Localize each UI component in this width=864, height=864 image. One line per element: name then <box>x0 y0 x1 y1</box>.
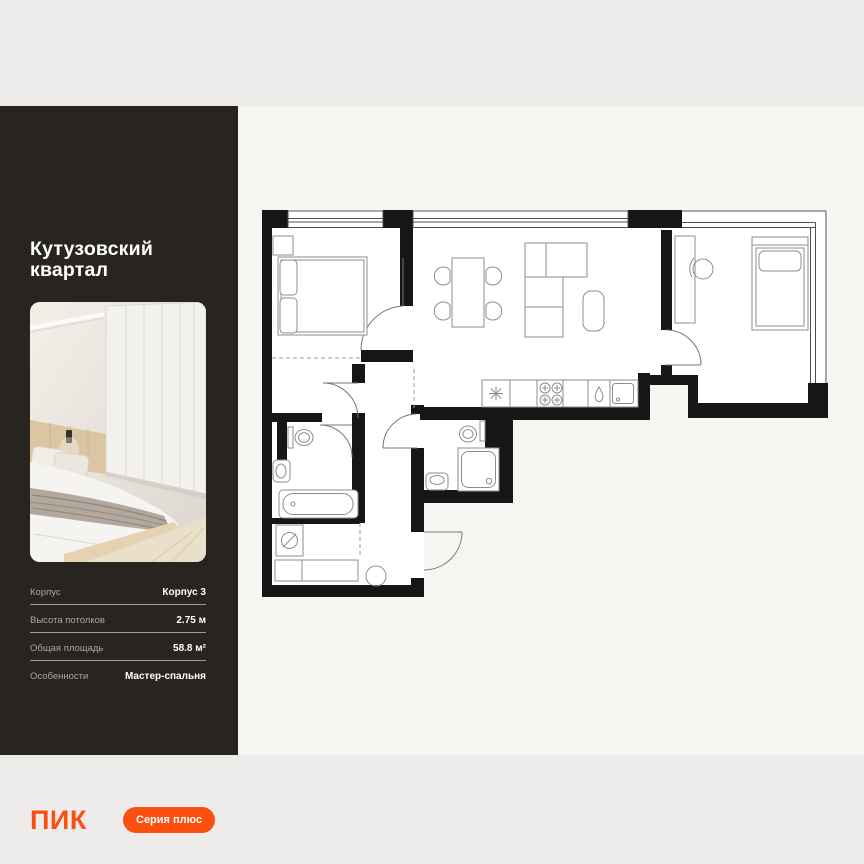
single-bed <box>752 237 808 330</box>
dining-table <box>452 258 484 327</box>
floor-plan <box>262 207 832 597</box>
entrance-door <box>424 532 462 570</box>
spec-list: Корпус Корпус 3 Высота потолков 2.75 м О… <box>30 587 206 698</box>
spec-label: Особенности <box>30 671 88 682</box>
spec-row-total-area: Общая площадь 58.8 м² <box>30 643 206 661</box>
sidebar: Кутузовский квартал <box>0 106 238 755</box>
wc-sink-icon <box>426 473 448 490</box>
spec-value: 2.75 м <box>176 615 206 626</box>
bedside-shelf <box>273 236 293 255</box>
spec-value: Мастер-спальня <box>125 671 206 682</box>
spec-value: 58.8 м² <box>173 643 206 654</box>
series-plus-badge: Серия плюс <box>123 807 215 833</box>
shower-icon <box>458 448 499 491</box>
spec-label: Корпус <box>30 587 61 598</box>
building-notch <box>650 385 688 418</box>
hallway-cabinet <box>275 560 358 581</box>
bedroom-photo-art <box>30 302 206 562</box>
kitchen-counter <box>482 380 638 407</box>
spec-row-features: Особенности Мастер-спальня <box>30 671 206 688</box>
spec-label: Высота потолков <box>30 615 105 626</box>
pik-logo: ПИК <box>30 805 87 836</box>
project-title: Кутузовский квартал <box>30 239 195 281</box>
desk <box>675 236 695 323</box>
spec-label: Общая площадь <box>30 643 103 654</box>
bathtub-icon <box>279 490 358 518</box>
spec-row-ceiling-height: Высота потолков 2.75 м <box>30 615 206 633</box>
washing-machine-icon <box>276 525 303 556</box>
floorplan-panel <box>238 106 864 755</box>
bedroom-photo <box>30 302 206 562</box>
fridge-icon <box>489 387 503 401</box>
card: Кутузовский квартал <box>0 106 864 755</box>
ottoman <box>583 291 604 331</box>
listing-card-image: Кутузовский квартал <box>0 0 864 864</box>
wardrobe <box>106 302 206 499</box>
spec-value: Корпус 3 <box>162 587 206 598</box>
bathroom-sink-icon <box>273 460 290 482</box>
spec-row-korpus: Корпус Корпус 3 <box>30 587 206 605</box>
